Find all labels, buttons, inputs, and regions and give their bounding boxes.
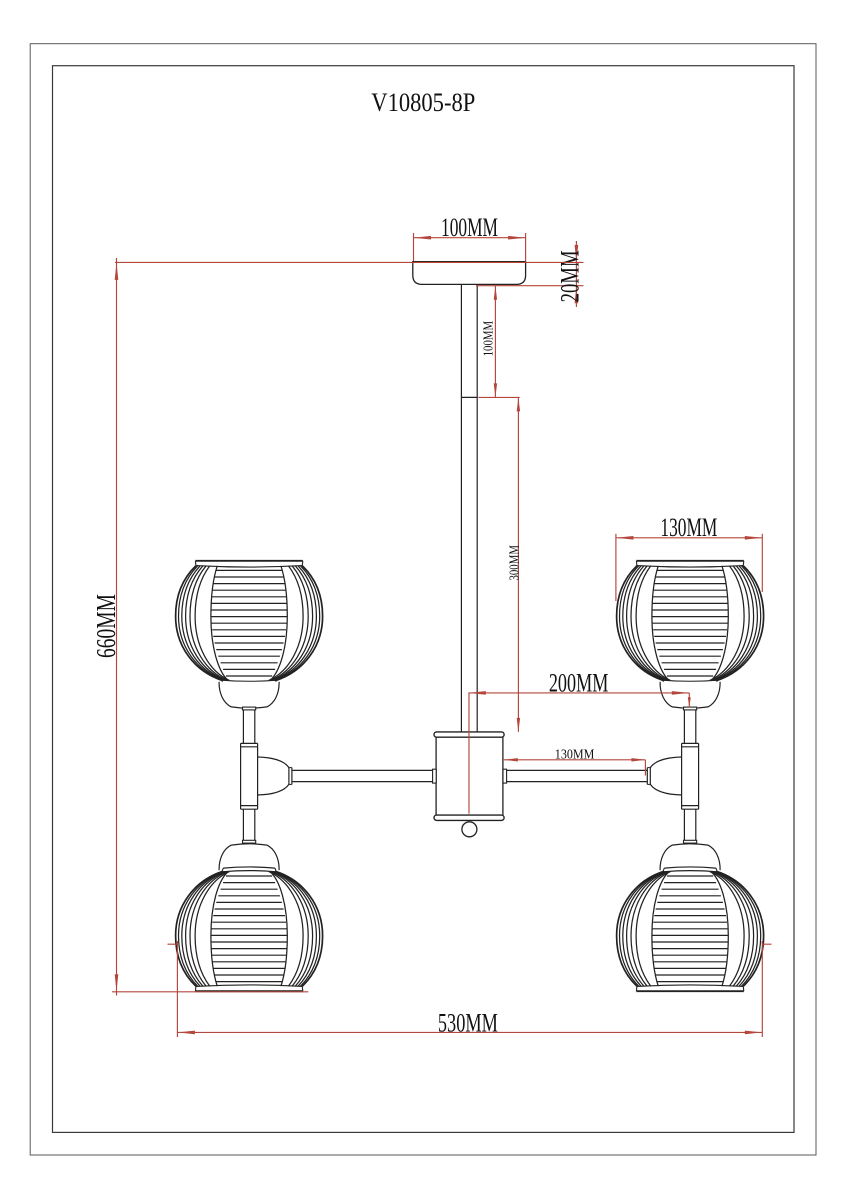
svg-text:V10805-8P: V10805-8P [371,88,475,117]
svg-text:200MM: 200MM [549,669,609,698]
svg-text:130MM: 130MM [555,746,595,761]
svg-text:20MM: 20MM [555,250,584,302]
svg-text:300MM: 300MM [506,545,521,581]
svg-text:100MM: 100MM [441,213,498,242]
svg-text:100MM: 100MM [480,321,495,357]
svg-text:130MM: 130MM [660,513,717,542]
svg-text:660MM: 660MM [91,594,121,658]
svg-text:530MM: 530MM [438,1009,498,1038]
